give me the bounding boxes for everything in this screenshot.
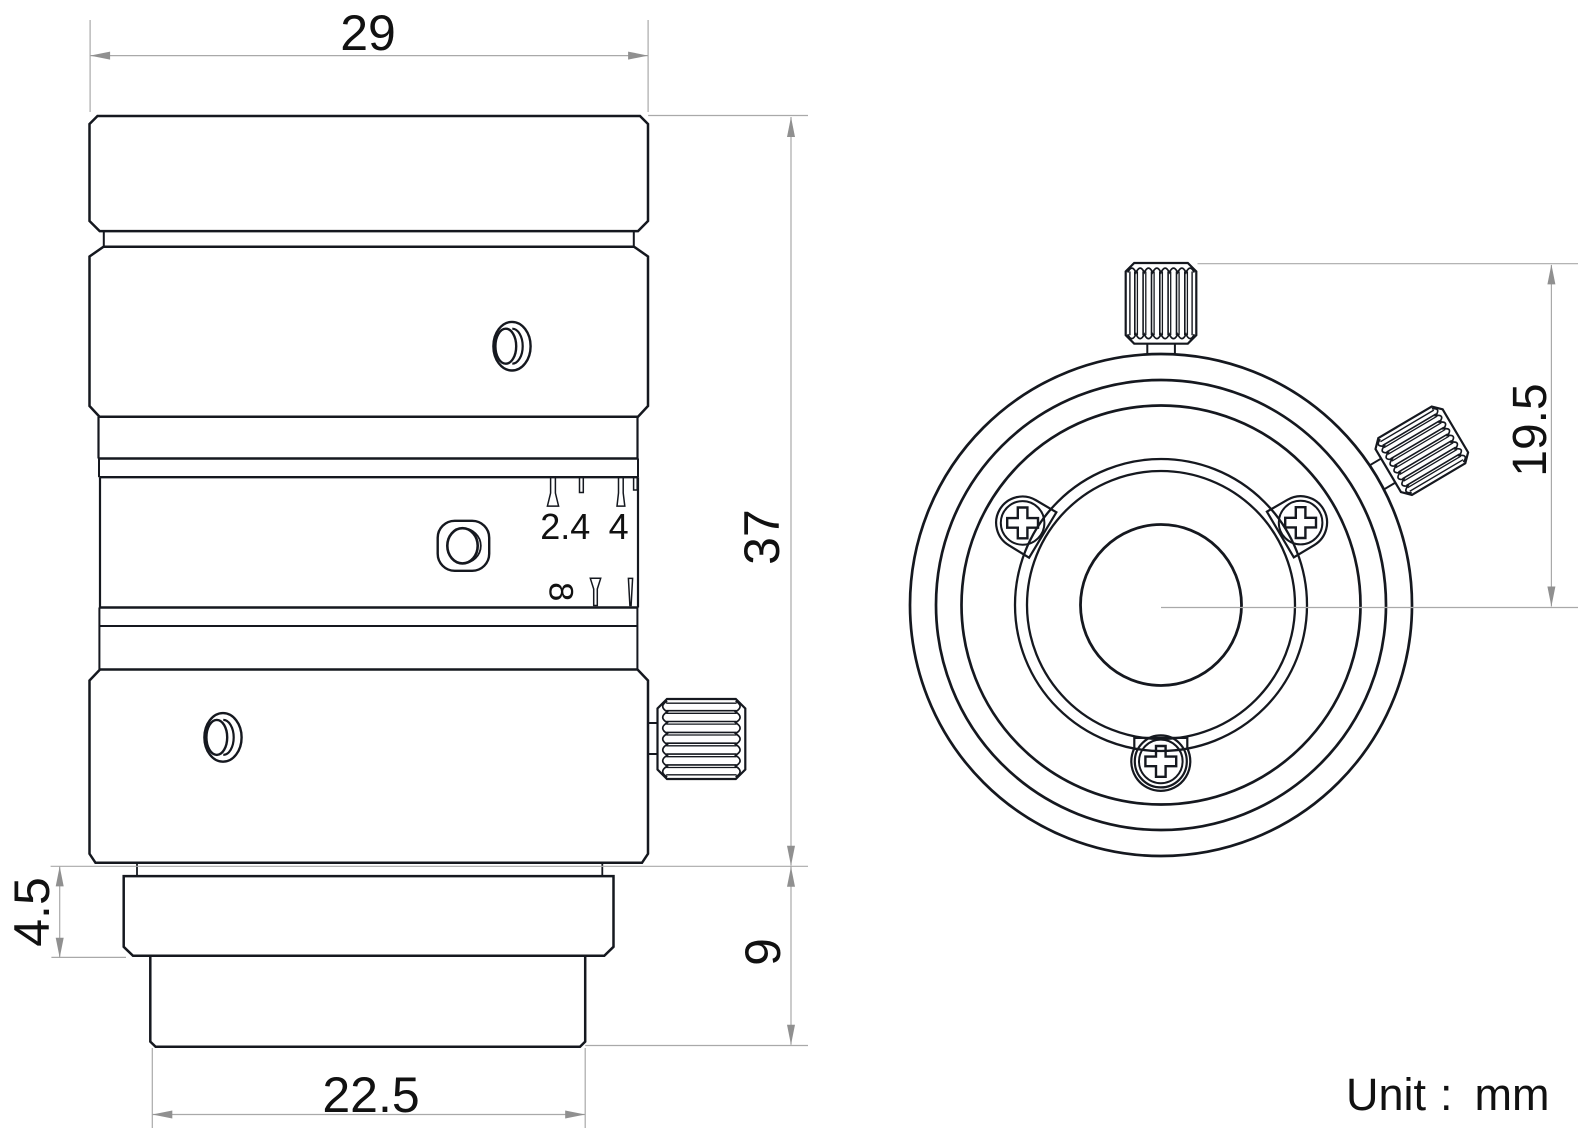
svg-text:22.5: 22.5: [322, 1067, 419, 1123]
svg-text:19.5: 19.5: [1504, 383, 1557, 476]
svg-text:4.5: 4.5: [4, 877, 60, 947]
svg-text:2.4: 2.4: [540, 506, 590, 547]
svg-text:Unit:mm: Unit:mm: [1346, 1069, 1550, 1120]
svg-text:37: 37: [734, 509, 790, 565]
svg-text:9: 9: [735, 938, 791, 966]
svg-text:8: 8: [542, 582, 580, 601]
svg-text:4: 4: [609, 506, 629, 547]
svg-text:29: 29: [340, 5, 396, 61]
